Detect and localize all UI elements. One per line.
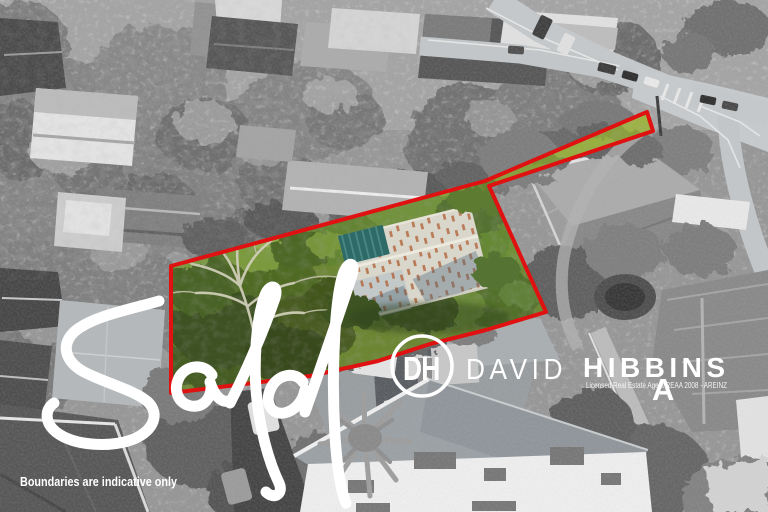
svg-text:A: A xyxy=(652,372,674,407)
svg-text:DAVID: DAVID xyxy=(466,354,567,386)
svg-text:DH: DH xyxy=(403,351,440,387)
svg-text:Boundaries are indicative only: Boundaries are indicative only xyxy=(20,475,177,489)
